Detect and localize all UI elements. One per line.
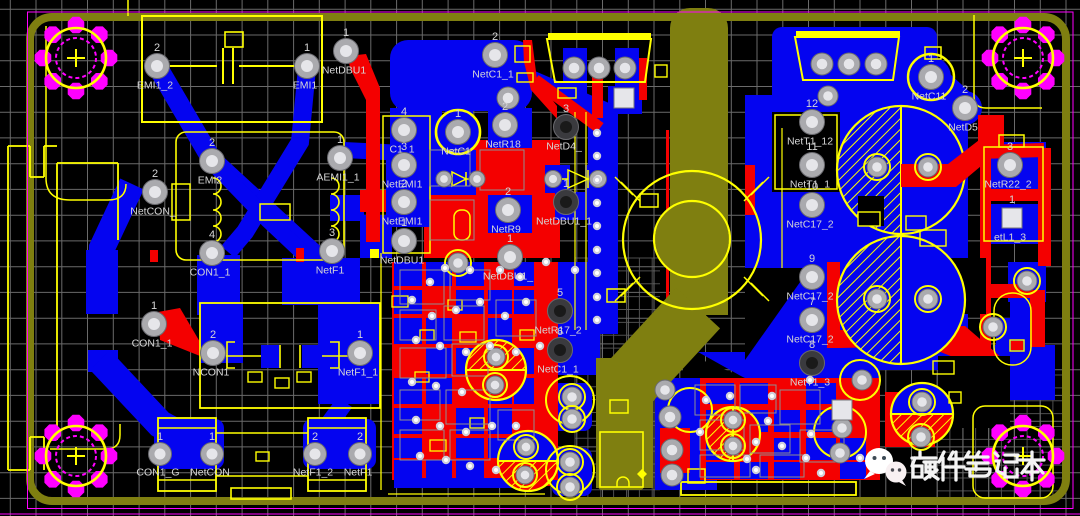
svg-text:EMI1_2: EMI1_2 (137, 80, 173, 92)
svg-text:NetCON: NetCON (190, 467, 230, 479)
svg-text:2: 2 (502, 101, 508, 113)
svg-text:NetDBU1_1: NetDBU1_1 (536, 216, 592, 228)
svg-text:NCON1: NCON1 (193, 367, 230, 379)
svg-text:NetF1_1: NetF1_1 (338, 367, 378, 379)
svg-text:12: 12 (806, 98, 818, 110)
svg-text:NetD5: NetD5 (948, 122, 978, 134)
svg-text:NetF1_2: NetF1_2 (293, 467, 333, 479)
svg-text:2: 2 (401, 178, 407, 190)
svg-text:EMI2: EMI2 (198, 175, 223, 187)
svg-text:AEMI1_1: AEMI1_1 (316, 172, 359, 184)
svg-text:11: 11 (806, 141, 817, 153)
svg-text:NetR18: NetR18 (485, 139, 521, 151)
svg-text:CON1_1: CON1_1 (132, 338, 173, 350)
svg-text:NetC1_1: NetC1_1 (472, 69, 514, 81)
svg-text:CON1_1: CON1_1 (190, 267, 231, 279)
svg-text:2: 2 (312, 431, 318, 443)
svg-text:2: 2 (962, 84, 968, 96)
svg-text:2: 2 (152, 168, 158, 180)
svg-text:9: 9 (809, 253, 815, 265)
svg-text:1: 1 (507, 233, 513, 245)
svg-text:CON1_G: CON1_G (136, 467, 179, 479)
svg-text:NetC11: NetC11 (912, 91, 947, 103)
svg-text:1: 1 (337, 134, 343, 146)
svg-text:etL1_3: etL1_3 (994, 232, 1026, 244)
svg-text:1: 1 (928, 53, 934, 65)
svg-text:1: 1 (455, 108, 461, 120)
svg-text:1: 1 (357, 329, 363, 341)
svg-text:10: 10 (806, 181, 818, 193)
svg-text:NetF1: NetF1 (316, 265, 345, 277)
svg-text:3: 3 (329, 227, 335, 239)
svg-text:1: 1 (343, 27, 349, 39)
svg-text:2: 2 (357, 431, 363, 443)
svg-text:8: 8 (809, 339, 815, 351)
svg-text:NetDBU1: NetDBU1 (322, 65, 367, 77)
svg-text:NetC1: NetC1 (441, 146, 471, 158)
svg-text:NetC17_2: NetC17_2 (786, 219, 833, 231)
svg-text:NetF1: NetF1 (344, 467, 373, 479)
svg-text:NetR22_2: NetR22_2 (984, 179, 1031, 191)
svg-text:NetCON_: NetCON_ (130, 206, 176, 218)
svg-text:2: 2 (505, 186, 511, 198)
svg-text:2: 2 (209, 137, 215, 149)
svg-text:7: 7 (809, 296, 815, 308)
svg-text:3: 3 (401, 141, 407, 153)
svg-text:3: 3 (563, 103, 569, 115)
svg-text:4: 4 (209, 229, 215, 241)
svg-text:6: 6 (557, 326, 563, 338)
svg-text:2: 2 (154, 42, 160, 54)
svg-text:1: 1 (401, 217, 407, 229)
svg-text:2: 2 (210, 329, 216, 341)
svg-text:1: 1 (151, 300, 157, 312)
svg-text:4: 4 (401, 106, 407, 118)
svg-text:5: 5 (557, 287, 563, 299)
svg-text:1: 1 (1009, 194, 1015, 206)
svg-text:1: 1 (157, 431, 163, 443)
svg-text:NetD4_: NetD4_ (546, 141, 582, 153)
svg-text:3: 3 (1007, 141, 1013, 153)
svg-text:NetDBU1_: NetDBU1_ (483, 271, 533, 283)
svg-text:2: 2 (492, 31, 498, 43)
svg-text:1: 1 (304, 42, 310, 54)
svg-text:EMI1: EMI1 (293, 80, 318, 92)
svg-text:NetC1_1: NetC1_1 (537, 364, 579, 376)
svg-text:1: 1 (209, 431, 215, 443)
svg-text:NetDBU1: NetDBU1 (380, 255, 425, 267)
svg-text:1: 1 (563, 178, 569, 190)
